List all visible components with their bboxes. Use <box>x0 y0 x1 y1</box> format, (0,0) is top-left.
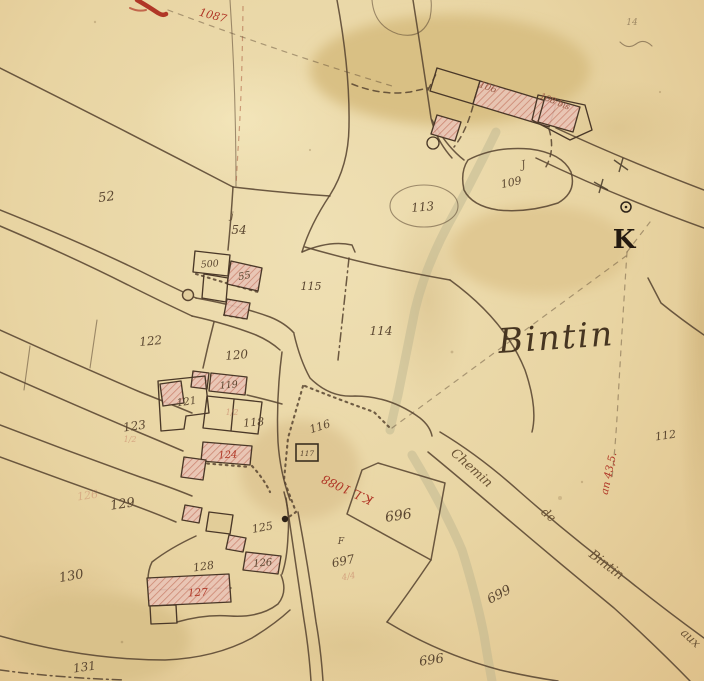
parcel-696: 696 <box>384 506 413 526</box>
fraction-123: 1/2 <box>124 435 137 444</box>
survey-marker-circle-dot <box>621 202 631 212</box>
road-west-lower <box>0 226 192 316</box>
parcel-122: 122 <box>139 333 163 349</box>
line-long-diagonal <box>0 68 233 187</box>
line-118-120-divide <box>247 395 282 404</box>
building-south-1 <box>182 505 202 523</box>
parcel-114: 114 <box>370 324 393 338</box>
parcel-129: 129 <box>109 495 136 513</box>
building-south-2 <box>226 535 246 552</box>
parcel-130: 130 <box>58 567 85 586</box>
stream <box>390 132 496 681</box>
jardin-mark-109: J <box>518 158 528 172</box>
red-glyph-top-left-2 <box>130 8 146 11</box>
road-name-aux: aux <box>678 626 704 651</box>
building-124: 124 <box>218 450 238 462</box>
line-120-west <box>203 322 214 368</box>
parcel-113: 113 <box>411 199 435 215</box>
courtyard-55 <box>202 274 228 302</box>
parcel-52: 52 <box>97 189 115 206</box>
building-55-annex <box>224 299 250 319</box>
building-500: 500 <box>200 258 219 271</box>
ghost-number-126: 126 <box>76 488 99 504</box>
parcel-699: 699 <box>485 582 514 607</box>
line-right-parcel <box>648 278 704 335</box>
line-699-west <box>387 560 431 622</box>
road-northeast-upper <box>556 128 704 190</box>
road-name-bintin: Bintin <box>585 547 627 584</box>
building-55: 55 <box>237 270 251 283</box>
parcel-697: 697 <box>331 552 357 571</box>
section-letter: K <box>613 225 637 255</box>
road-south-east-edge <box>298 512 323 681</box>
red-note-an435: an 43,5. <box>599 451 620 496</box>
line-yard-127 <box>148 536 196 580</box>
letter-F: F <box>337 537 345 547</box>
building-126: 126 <box>253 557 274 570</box>
pond-circle <box>183 290 194 301</box>
red-glyph-top-left <box>137 0 166 15</box>
line-junction-east <box>233 187 330 196</box>
street-lower <box>192 316 280 350</box>
parcel-117: 117 <box>300 449 315 458</box>
parcel-109: 109 <box>500 174 523 191</box>
road-west-upper <box>0 210 196 298</box>
parcel-123: 123 <box>122 417 147 434</box>
parcel-112: 112 <box>654 428 677 444</box>
parcel-115: 115 <box>301 280 322 293</box>
parcel-128: 128 <box>192 559 215 575</box>
line-bottom-696 <box>387 622 558 681</box>
fraction-697: 4/4 <box>340 571 356 583</box>
cross-tick-1 <box>614 158 628 172</box>
building-124-west-annex <box>181 457 206 480</box>
boundary-black-dot <box>282 516 288 522</box>
building-125: 125 <box>251 519 274 535</box>
dash-section-k-vertical <box>612 252 627 478</box>
building-119: 119 <box>219 379 238 392</box>
stream-lower <box>412 455 492 681</box>
cadastral-map-sheet: 5254j50055115114113109J106108 bis1121161… <box>0 0 704 681</box>
dash-108-south <box>544 129 552 170</box>
building-tan-125 <box>206 512 233 534</box>
reddash-52-vertical <box>236 6 243 186</box>
line-strip-2 <box>0 372 183 451</box>
building-127: 127 <box>188 586 209 599</box>
road-south-west-edge <box>286 498 311 681</box>
building-121: 121 <box>176 395 198 410</box>
parcel-120: 120 <box>225 347 249 363</box>
squiggle-top-right <box>620 41 652 46</box>
map-canvas: 5254j50055115114113109J106108 bis1121161… <box>0 0 704 681</box>
fraction-118: 1/2 <box>226 408 239 417</box>
parcel-54: 54 <box>231 223 246 237</box>
corner-number-14: 14 <box>626 18 638 28</box>
line-strip-cross-1 <box>90 320 97 368</box>
dashdot-115-114 <box>338 258 349 360</box>
road-southwest-upper <box>0 425 192 496</box>
jardin-mark-54: j <box>228 211 233 222</box>
line-vertical-52 <box>230 0 236 186</box>
tower-circle <box>427 137 439 149</box>
parcel-118: 118 <box>243 415 265 430</box>
parcel-696-bottom: 696 <box>418 651 445 669</box>
place-name: Bintin <box>496 314 616 362</box>
